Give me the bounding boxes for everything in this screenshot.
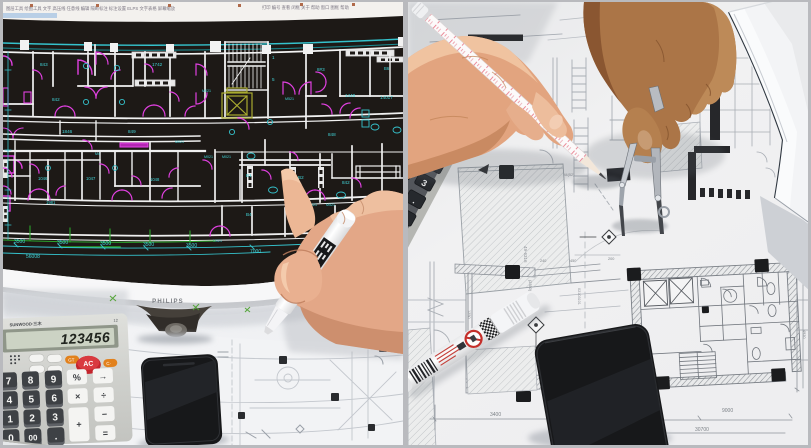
svg-text:849: 849 xyxy=(128,129,136,134)
svg-text:9: 9 xyxy=(50,374,56,385)
svg-text:3500: 3500 xyxy=(100,241,111,247)
svg-text:30700: 30700 xyxy=(695,427,709,433)
svg-text:843: 843 xyxy=(40,62,48,67)
svg-text:1047: 1047 xyxy=(86,176,96,181)
svg-text:M021: M021 xyxy=(175,140,184,144)
svg-text:=: = xyxy=(103,428,109,438)
svg-text:%: % xyxy=(73,372,81,382)
svg-text:(2350): (2350) xyxy=(528,280,532,292)
svg-text:×: × xyxy=(75,391,81,401)
svg-text:3400: 3400 xyxy=(490,412,501,418)
svg-text:+: + xyxy=(76,419,82,429)
svg-text:5: 5 xyxy=(272,77,275,82)
svg-text:4920: 4920 xyxy=(802,330,806,338)
svg-text:14017: 14017 xyxy=(380,95,393,100)
svg-text:200: 200 xyxy=(608,257,614,261)
svg-text:PHILIPS: PHILIPS xyxy=(152,299,184,305)
svg-text:8#3: 8#3 xyxy=(317,67,325,72)
svg-text:5: 5 xyxy=(28,394,34,405)
svg-text:GT: GT xyxy=(68,358,75,363)
svg-text:−: − xyxy=(102,409,108,419)
svg-text:3500: 3500 xyxy=(143,242,154,248)
svg-text:3: 3 xyxy=(52,412,58,423)
svg-text:00: 00 xyxy=(28,433,38,442)
svg-text:6: 6 xyxy=(51,393,57,404)
svg-text:1981: 1981 xyxy=(46,200,56,205)
svg-text:842: 842 xyxy=(342,180,350,185)
svg-text:B6: B6 xyxy=(384,66,390,71)
svg-text:M021: M021 xyxy=(222,155,231,159)
svg-text:1: 1 xyxy=(7,414,13,425)
svg-text:8: 8 xyxy=(27,375,33,386)
svg-text:3500: 3500 xyxy=(186,243,197,249)
svg-text:123456: 123456 xyxy=(60,329,110,347)
svg-text:3500: 3500 xyxy=(57,240,68,246)
svg-text:M021: M021 xyxy=(204,155,213,159)
svg-text:M4: M4 xyxy=(95,152,100,156)
svg-text:49-6316: 49-6316 xyxy=(523,246,528,263)
svg-text:56008: 56008 xyxy=(26,254,40,260)
svg-text:7: 7 xyxy=(6,376,12,387)
svg-text:9000: 9000 xyxy=(722,408,733,414)
svg-text:1: 1 xyxy=(272,55,275,60)
svg-text:7000: 7000 xyxy=(250,249,261,255)
svg-text:1742: 1742 xyxy=(152,62,163,67)
svg-text:1250: 1250 xyxy=(467,310,471,318)
svg-text:C·: C· xyxy=(106,361,111,366)
svg-text:B2: B2 xyxy=(298,175,304,180)
svg-text:450: 450 xyxy=(570,259,576,263)
svg-text:M021: M021 xyxy=(202,89,211,93)
svg-text:÷: ÷ xyxy=(101,390,106,400)
svg-text:→: → xyxy=(98,371,107,381)
svg-text:2: 2 xyxy=(29,413,35,424)
svg-text:3500: 3500 xyxy=(14,239,25,245)
svg-text:4: 4 xyxy=(6,395,12,406)
svg-text:1846: 1846 xyxy=(62,129,73,134)
svg-text:1448: 1448 xyxy=(345,93,356,98)
svg-text:02103101: 02103101 xyxy=(577,288,581,305)
svg-text:240: 240 xyxy=(540,259,546,263)
svg-text:842: 842 xyxy=(52,97,60,102)
svg-text:打印 编号 查看 闭框 关于 帮助 窗口 图框: 打印 编号 查看 闭框 关于 帮助 窗口 图框 帮助 xyxy=(262,4,349,11)
svg-text:M521: M521 xyxy=(285,97,294,101)
svg-text:1048: 1048 xyxy=(150,177,160,182)
svg-text:1046: 1046 xyxy=(38,176,48,181)
svg-text:AC: AC xyxy=(83,361,93,368)
svg-text:848: 848 xyxy=(328,132,336,137)
svg-text:M521: M521 xyxy=(326,203,335,207)
svg-text:B1: B1 xyxy=(246,173,252,178)
svg-text:B4: B4 xyxy=(246,212,252,217)
